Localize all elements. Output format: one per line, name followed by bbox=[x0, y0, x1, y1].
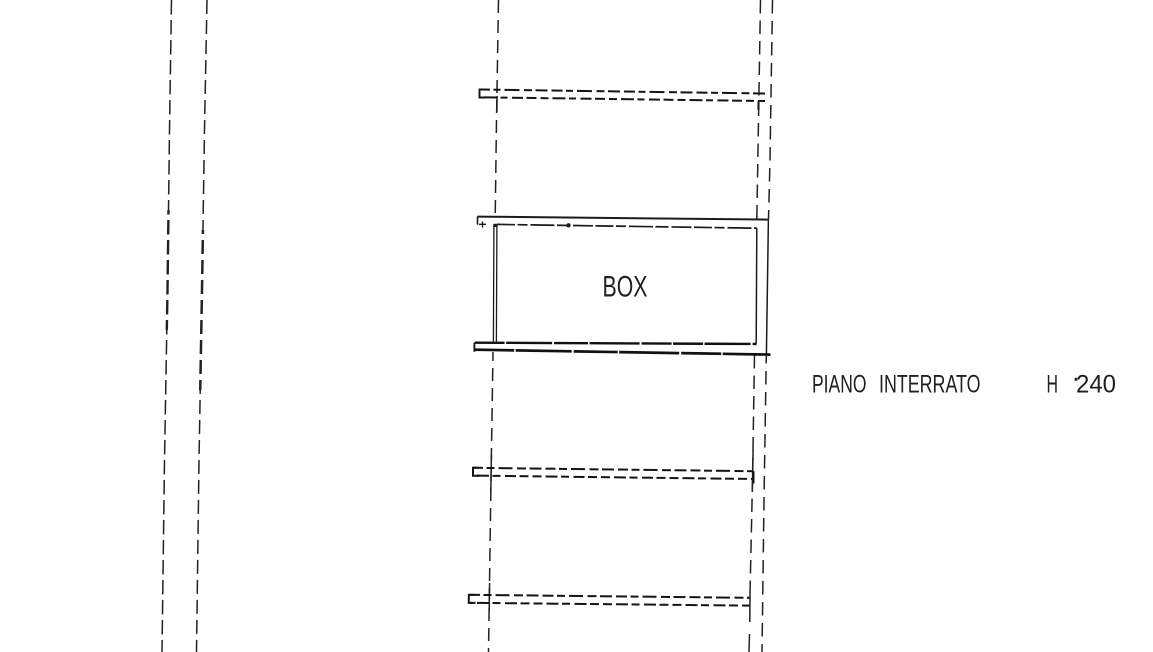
svg-text:H: H bbox=[1047, 372, 1059, 399]
svg-text:BOX: BOX bbox=[603, 271, 648, 304]
svg-text:INTERRATO: INTERRATO bbox=[879, 372, 981, 399]
svg-text:PIANO: PIANO bbox=[812, 372, 867, 399]
svg-text:240: 240 bbox=[1076, 372, 1116, 399]
